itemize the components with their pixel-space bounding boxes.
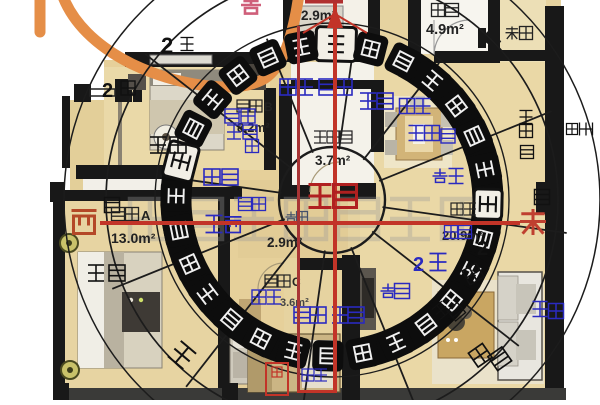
svg-text:4.9m²: 4.9m² (426, 22, 464, 38)
svg-text:13.0m²: 13.0m² (111, 230, 156, 246)
svg-text:3.7m²: 3.7m² (315, 153, 351, 168)
svg-text:2: 2 (102, 80, 113, 102)
svg-text:A: A (141, 208, 151, 223)
svg-text:2: 2 (413, 254, 424, 276)
svg-text:2: 2 (161, 33, 173, 58)
svg-text:B: B (264, 100, 273, 114)
